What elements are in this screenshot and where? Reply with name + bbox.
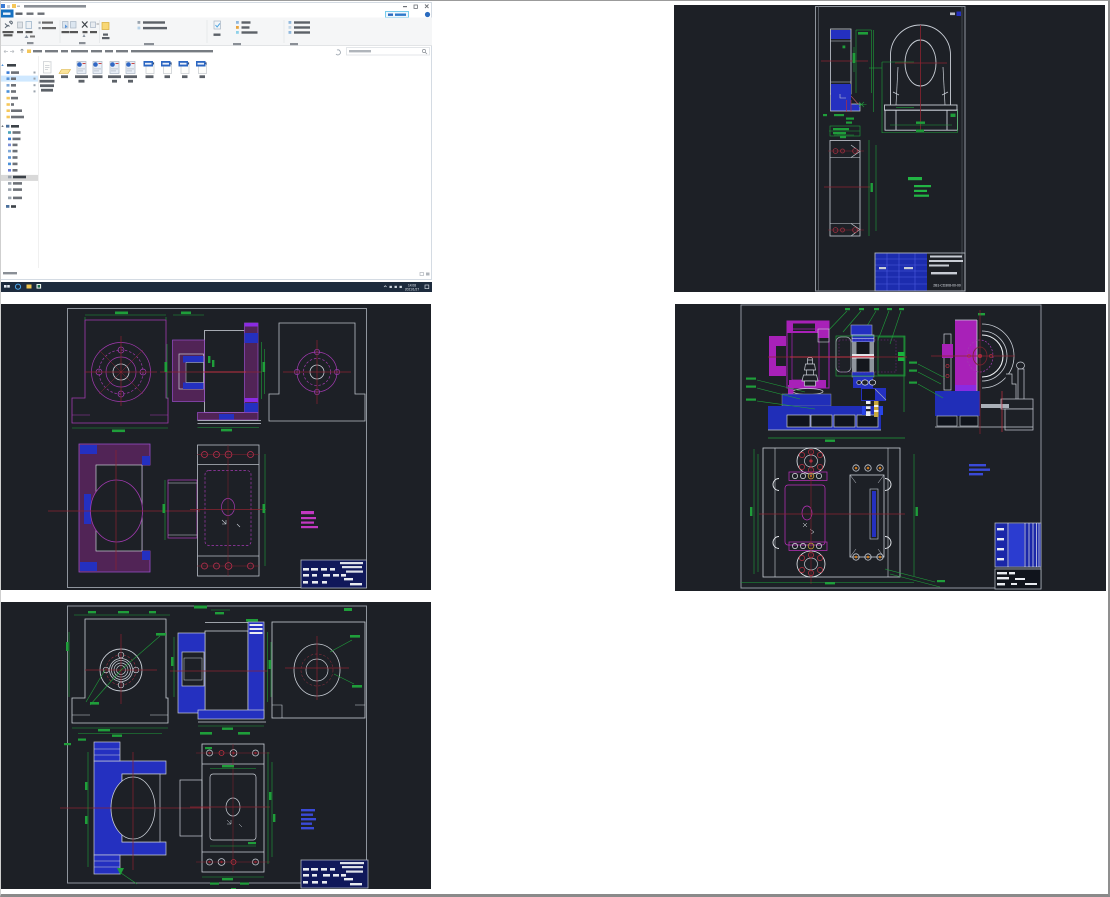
svg-text:2021/1/27: 2021/1/27 xyxy=(405,287,419,291)
svg-text:2B1-CD308-00-00: 2B1-CD308-00-00 xyxy=(933,284,961,288)
